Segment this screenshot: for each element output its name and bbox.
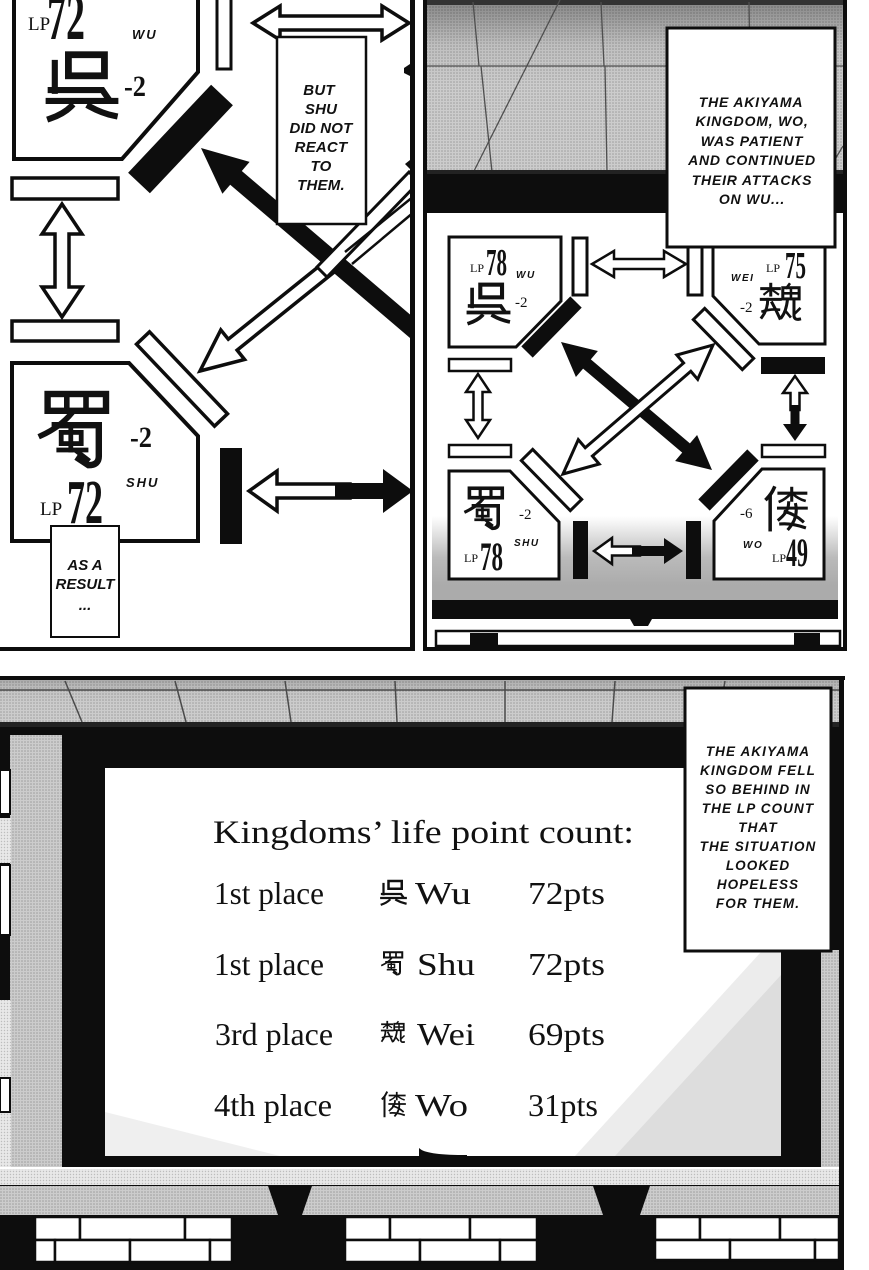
svg-text:SHU: SHU (126, 475, 159, 490)
svg-text:Wei: Wei (417, 1016, 475, 1052)
svg-text:-2: -2 (519, 507, 532, 523)
svg-text:49: 49 (786, 530, 808, 575)
svg-text:72pts: 72pts (528, 946, 605, 982)
svg-text:-2: -2 (124, 70, 146, 103)
svg-text:LP: LP (464, 551, 478, 565)
svg-text:RESULT: RESULT (56, 576, 117, 593)
svg-text:LP: LP (772, 551, 786, 565)
svg-text:LP: LP (40, 499, 62, 520)
svg-text:69pts: 69pts (528, 1016, 605, 1052)
svg-text:WU: WU (132, 27, 158, 42)
svg-text:AND CONTINUED: AND CONTINUED (687, 152, 816, 168)
svg-text:-2: -2 (130, 421, 152, 454)
svg-text:-2: -2 (740, 300, 753, 316)
svg-text:WAS PATIENT: WAS PATIENT (701, 133, 804, 149)
svg-text:Wu: Wu (415, 875, 471, 911)
svg-text:SHU: SHU (514, 538, 540, 549)
svg-text:78: 78 (480, 534, 503, 579)
svg-text:ON WU...: ON WU... (719, 191, 785, 207)
svg-text:1st place: 1st place (214, 875, 324, 911)
svg-text:TO: TO (311, 158, 332, 175)
svg-text:72: 72 (47, 0, 85, 54)
svg-text:DID NOT: DID NOT (289, 120, 354, 137)
svg-text:SHU: SHU (305, 101, 338, 118)
svg-text:3rd place: 3rd place (215, 1016, 333, 1052)
svg-text:THE SITUATION: THE SITUATION (700, 839, 817, 854)
svg-text:WEI: WEI (731, 273, 754, 284)
svg-text:72pts: 72pts (528, 875, 605, 911)
svg-text:-6: -6 (740, 506, 753, 522)
svg-text:THAT: THAT (738, 820, 778, 835)
svg-text:78: 78 (486, 242, 507, 284)
svg-text:LP: LP (470, 261, 484, 275)
svg-text:1st place: 1st place (214, 946, 324, 982)
svg-text:LOOKED: LOOKED (726, 858, 790, 873)
svg-text:HOPELESS: HOPELESS (717, 877, 799, 892)
svg-text:Kingdoms’ life point count:: Kingdoms’ life point count: (213, 815, 634, 851)
svg-text:THE AKIYAMA: THE AKIYAMA (706, 744, 810, 759)
svg-text:REACT: REACT (295, 139, 349, 156)
svg-text:FOR THEM.: FOR THEM. (716, 896, 800, 911)
svg-text:THE LP COUNT: THE LP COUNT (702, 801, 815, 816)
svg-text:4th place: 4th place (214, 1087, 332, 1123)
svg-text:THE AKIYAMA: THE AKIYAMA (699, 94, 803, 110)
svg-text:31pts: 31pts (528, 1087, 598, 1123)
svg-text:...: ... (79, 597, 92, 614)
svg-text:75: 75 (785, 245, 806, 287)
svg-text:Wo: Wo (415, 1087, 468, 1123)
svg-text:KINGDOM FELL: KINGDOM FELL (700, 763, 816, 778)
svg-text:BUT: BUT (303, 82, 336, 99)
svg-text:AS A: AS A (66, 557, 102, 574)
svg-text:KINGDOM, WO,: KINGDOM, WO, (695, 113, 808, 129)
svg-text:THEIR ATTACKS: THEIR ATTACKS (692, 172, 813, 188)
svg-text:WU: WU (516, 270, 536, 281)
svg-text:THEM.: THEM. (297, 177, 345, 194)
svg-text:SO BEHIND IN: SO BEHIND IN (705, 782, 810, 797)
svg-text:Shu: Shu (417, 946, 475, 982)
svg-text:LP: LP (766, 261, 780, 275)
svg-text:WO: WO (743, 540, 763, 551)
svg-text:-2: -2 (515, 295, 528, 311)
